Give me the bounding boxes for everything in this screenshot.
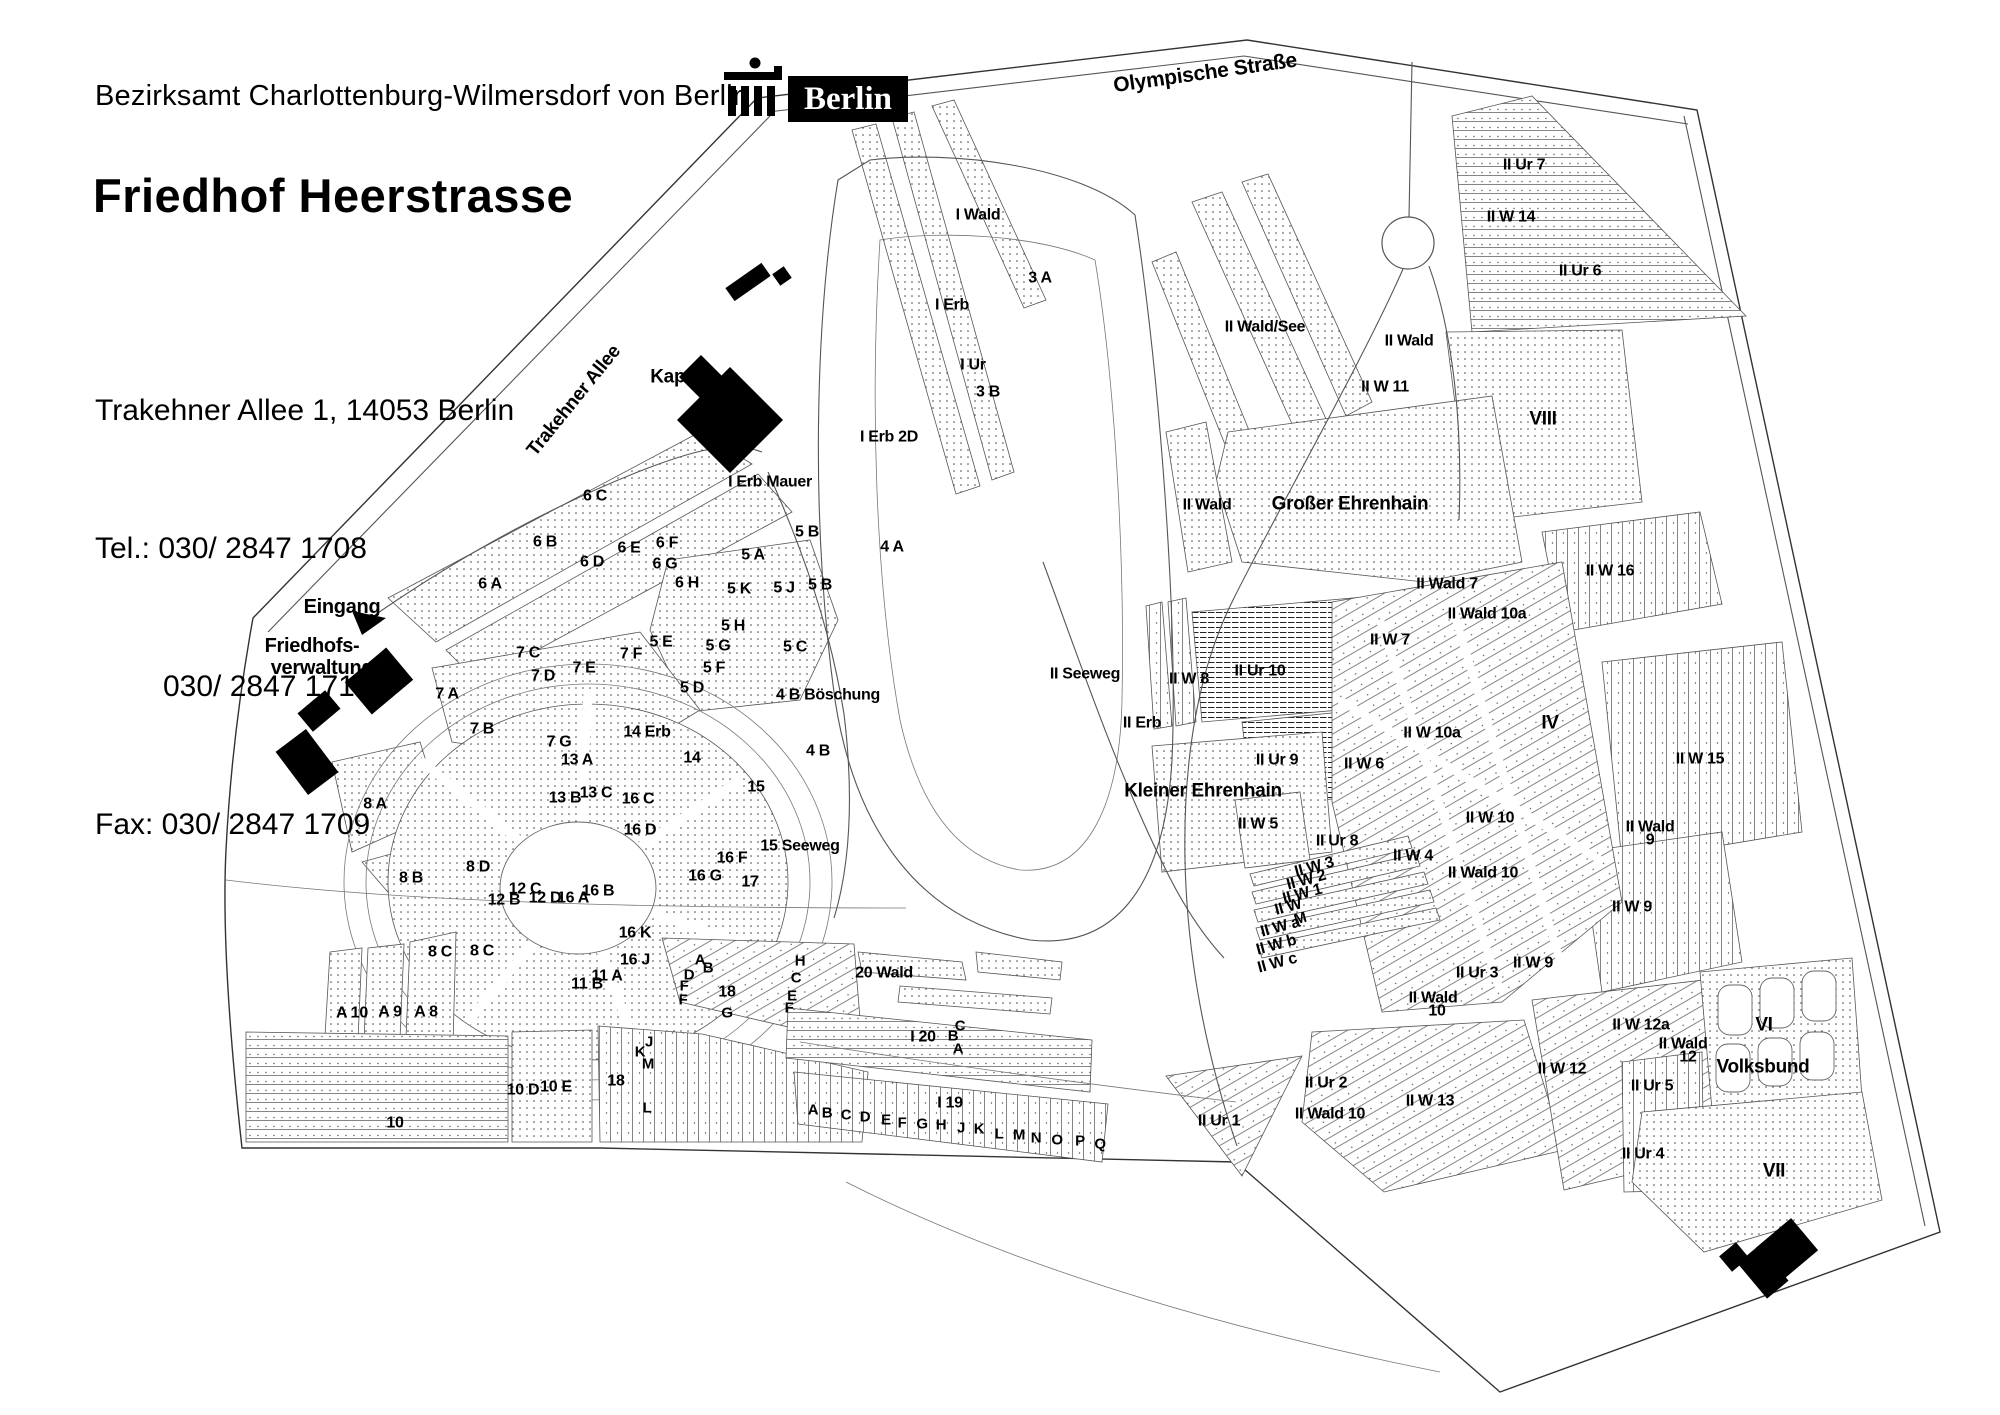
map-label: I Erb 2D — [860, 429, 918, 446]
map-label: 8 C — [428, 944, 453, 961]
section-10 — [246, 1032, 508, 1142]
section-20wald-2 — [976, 952, 1062, 980]
map-label: II Wald/See — [1225, 319, 1306, 336]
section-20wald-3 — [898, 986, 1052, 1014]
map-label: II W 16 — [1586, 563, 1635, 580]
map-label: 6 H — [675, 575, 699, 592]
map-label: 7 C — [516, 645, 541, 662]
map-label: II Erb — [1123, 715, 1162, 732]
map-label: 10 E — [540, 1079, 572, 1096]
map-label: 10 — [1428, 1003, 1446, 1020]
map-label: L — [995, 1125, 1004, 1142]
map-label: A 8 — [414, 1004, 438, 1021]
map-label: I 20 — [910, 1029, 936, 1046]
map-label: 5 D — [680, 680, 704, 697]
section-iiw8-1 — [1146, 602, 1172, 729]
map-label: Kleiner Ehrenhain — [1124, 781, 1282, 802]
map-label: 13 C — [580, 785, 613, 802]
map-label: 4 B Böschung — [776, 687, 880, 704]
map-label: 20 Wald — [855, 965, 913, 982]
map-label: II Ur 9 — [1256, 752, 1299, 769]
map-label: H — [795, 952, 806, 969]
map-label: G — [916, 1115, 927, 1132]
map-label: 13 B — [549, 790, 582, 807]
map-label: II W 5 — [1238, 816, 1278, 833]
map-label: VI — [1755, 1015, 1772, 1036]
map-label: II Ur 5 — [1631, 1078, 1674, 1095]
map-label: 15 Seeweg — [760, 838, 839, 855]
map-label: 16 D — [624, 822, 657, 839]
address-line: Trakehner Allee 1, 14053 Berlin — [95, 388, 514, 434]
map-label: 6 F — [656, 535, 679, 552]
map-label: 5 B — [795, 524, 819, 541]
map-label: II Ur 6 — [1559, 263, 1602, 280]
map-label: I Wald — [956, 207, 1001, 224]
map-label: J — [645, 1033, 653, 1050]
map-label: H — [936, 1116, 947, 1133]
map-label: Olympische Straße — [1112, 49, 1299, 98]
agency-name: Bezirksamt Charlottenburg-Wilmersdorf vo… — [95, 80, 749, 113]
map-label: F — [679, 991, 688, 1008]
map-label: A — [953, 1040, 964, 1057]
building-north-1 — [725, 263, 770, 301]
map-label: 16 A — [557, 890, 590, 907]
map-label: 6 B — [533, 534, 557, 551]
map-label: 17 — [741, 874, 759, 891]
map-label: 7 G — [547, 734, 572, 751]
section-vii — [1632, 1092, 1882, 1252]
map-label: B — [703, 959, 714, 976]
map-label: 16 J — [620, 952, 650, 969]
map-label: 5 K — [727, 581, 752, 598]
map-label: I Ur — [960, 357, 986, 374]
page-title: Friedhof Heerstrasse — [93, 168, 573, 223]
map-label: C — [841, 1106, 852, 1123]
map-label: II Wald 10a — [1448, 606, 1527, 623]
map-label: VII — [1763, 1161, 1785, 1182]
map-label: P — [1075, 1132, 1085, 1149]
south-street — [846, 1182, 1440, 1372]
map-label: G — [721, 1004, 732, 1021]
map-label: 5 F — [703, 660, 726, 677]
map-label: O — [1051, 1131, 1063, 1148]
map-label: II Wald 7 — [1416, 576, 1478, 593]
map-label: 16 F — [717, 850, 748, 867]
map-label: 18 — [607, 1073, 625, 1090]
map-label: II W 12 — [1538, 1061, 1587, 1078]
map-label: II W 12a — [1612, 1017, 1670, 1034]
map-label: II Wald — [1385, 333, 1434, 350]
map-label: II W 10 — [1466, 810, 1515, 827]
map-label: II Ur 10 — [1235, 663, 1286, 680]
map-label: 18 — [718, 984, 736, 1001]
map-label: II W 9 — [1612, 899, 1652, 916]
fax-line: Fax: 030/ 2847 1709 — [95, 802, 514, 848]
page: Olympische StraßeTrakehner AlleeEingangF… — [0, 0, 2000, 1415]
map-label: 11 B — [571, 976, 603, 993]
map-label: II W 4 — [1393, 848, 1433, 865]
map-label: II W 15 — [1676, 751, 1725, 768]
map-label: II W 11 — [1361, 379, 1409, 396]
building-north-2 — [772, 266, 791, 285]
map-label: 10 — [386, 1115, 404, 1132]
map-label: A 9 — [378, 1004, 402, 1021]
map-label: 7 E — [572, 660, 596, 677]
map-label: 12 D — [529, 890, 562, 907]
meadow-loop-outer — [818, 157, 1173, 941]
berlin-logo: Berlin — [722, 56, 908, 124]
map-label: II Ur 2 — [1305, 1075, 1348, 1092]
map-label: Trakehner Allee — [523, 341, 625, 460]
map-label: 5 B — [808, 577, 832, 594]
map-label: 5 J — [773, 580, 794, 597]
map-label: 5 G — [706, 638, 731, 655]
map-label: II Wald 10 — [1295, 1106, 1366, 1123]
map-label: 4 B — [806, 743, 830, 760]
map-label: I Erb Mauer — [728, 474, 812, 491]
map-label: B — [822, 1104, 833, 1121]
map-label: 14 — [683, 750, 701, 767]
map-label: M — [1013, 1126, 1025, 1143]
map-label: 5 C — [783, 639, 808, 656]
map-label: E — [881, 1111, 891, 1128]
berlin-gate-icon — [722, 56, 784, 124]
map-label: 6 C — [583, 488, 608, 505]
map-label: C — [791, 969, 802, 986]
map-label: 6 G — [653, 556, 678, 573]
map-label: II Ur 3 — [1456, 965, 1499, 982]
map-label: 16 K — [619, 925, 652, 942]
map-label: II Wald 10 — [1448, 865, 1519, 882]
map-label: II W 7 — [1370, 632, 1410, 649]
map-label: 4 A — [880, 539, 904, 556]
roundabout — [1382, 217, 1434, 269]
phone-line-2: 030/ 2847 1710 — [95, 664, 514, 710]
map-label: I Erb — [935, 297, 970, 314]
map-label: II Ur 1 — [1198, 1113, 1241, 1130]
map-label: Kapelle — [650, 367, 716, 388]
map-label: Großer Ehrenhain — [1272, 494, 1429, 515]
map-label: 3 B — [976, 384, 1000, 401]
map-label: II W 10a — [1403, 725, 1461, 742]
map-label: 13 A — [561, 752, 594, 769]
map-label: A 10 — [336, 1005, 368, 1022]
map-label: II Wald — [1183, 497, 1232, 514]
map-label: II W 6 — [1344, 756, 1384, 773]
map-label: 6 D — [580, 554, 604, 571]
map-label: IV — [1541, 713, 1559, 734]
map-label: J — [957, 1119, 965, 1136]
map-label: II Ur 8 — [1316, 833, 1359, 850]
map-label: II Seeweg — [1050, 666, 1120, 683]
map-label: 16 G — [688, 868, 722, 885]
map-label: 5 E — [649, 634, 673, 651]
map-label: 15 — [747, 779, 765, 796]
address-block: Trakehner Allee 1, 14053 Berlin Tel.: 03… — [95, 296, 514, 940]
map-label: 5 H — [721, 618, 745, 635]
map-label: II Ur 7 — [1503, 157, 1546, 174]
map-label: F — [785, 999, 794, 1016]
map-label: 10 D — [507, 1082, 540, 1099]
map-label: 7 D — [531, 668, 555, 685]
map-label: Q — [1094, 1135, 1106, 1152]
map-label: K — [974, 1120, 985, 1137]
map-label: F — [898, 1114, 907, 1131]
map-label: 6 E — [617, 540, 641, 557]
berlin-logo-wordmark: Berlin — [788, 76, 908, 122]
map-label: 9 — [1646, 832, 1655, 849]
map-label: II W 13 — [1406, 1093, 1455, 1110]
map-label: 7 F — [620, 646, 643, 663]
map-label: 8 C — [470, 943, 495, 960]
map-label: 16 C — [622, 791, 655, 808]
map-label: II W 8 — [1169, 671, 1209, 688]
map-label: II Ur 4 — [1622, 1146, 1665, 1163]
map-label: I 19 — [937, 1095, 963, 1112]
map-label: M — [642, 1055, 654, 1072]
section-grosser-ehrenhain — [1216, 396, 1522, 582]
map-label: 5 A — [741, 547, 765, 564]
map-label: N — [1031, 1129, 1042, 1146]
map-label: II W 9 — [1513, 955, 1553, 972]
map-label: Volksbund — [1716, 1057, 1809, 1078]
map-label: D — [860, 1108, 871, 1125]
map-label: 12 — [1679, 1049, 1697, 1066]
map-label: 3 A — [1028, 270, 1052, 287]
map-label: A — [808, 1101, 819, 1118]
map-label: L — [643, 1099, 652, 1116]
map-label: 14 Erb — [623, 724, 671, 741]
map-label: VIII — [1529, 409, 1556, 430]
map-label: II W 14 — [1487, 209, 1536, 226]
phone-line-1: Tel.: 030/ 2847 1708 — [95, 526, 514, 572]
